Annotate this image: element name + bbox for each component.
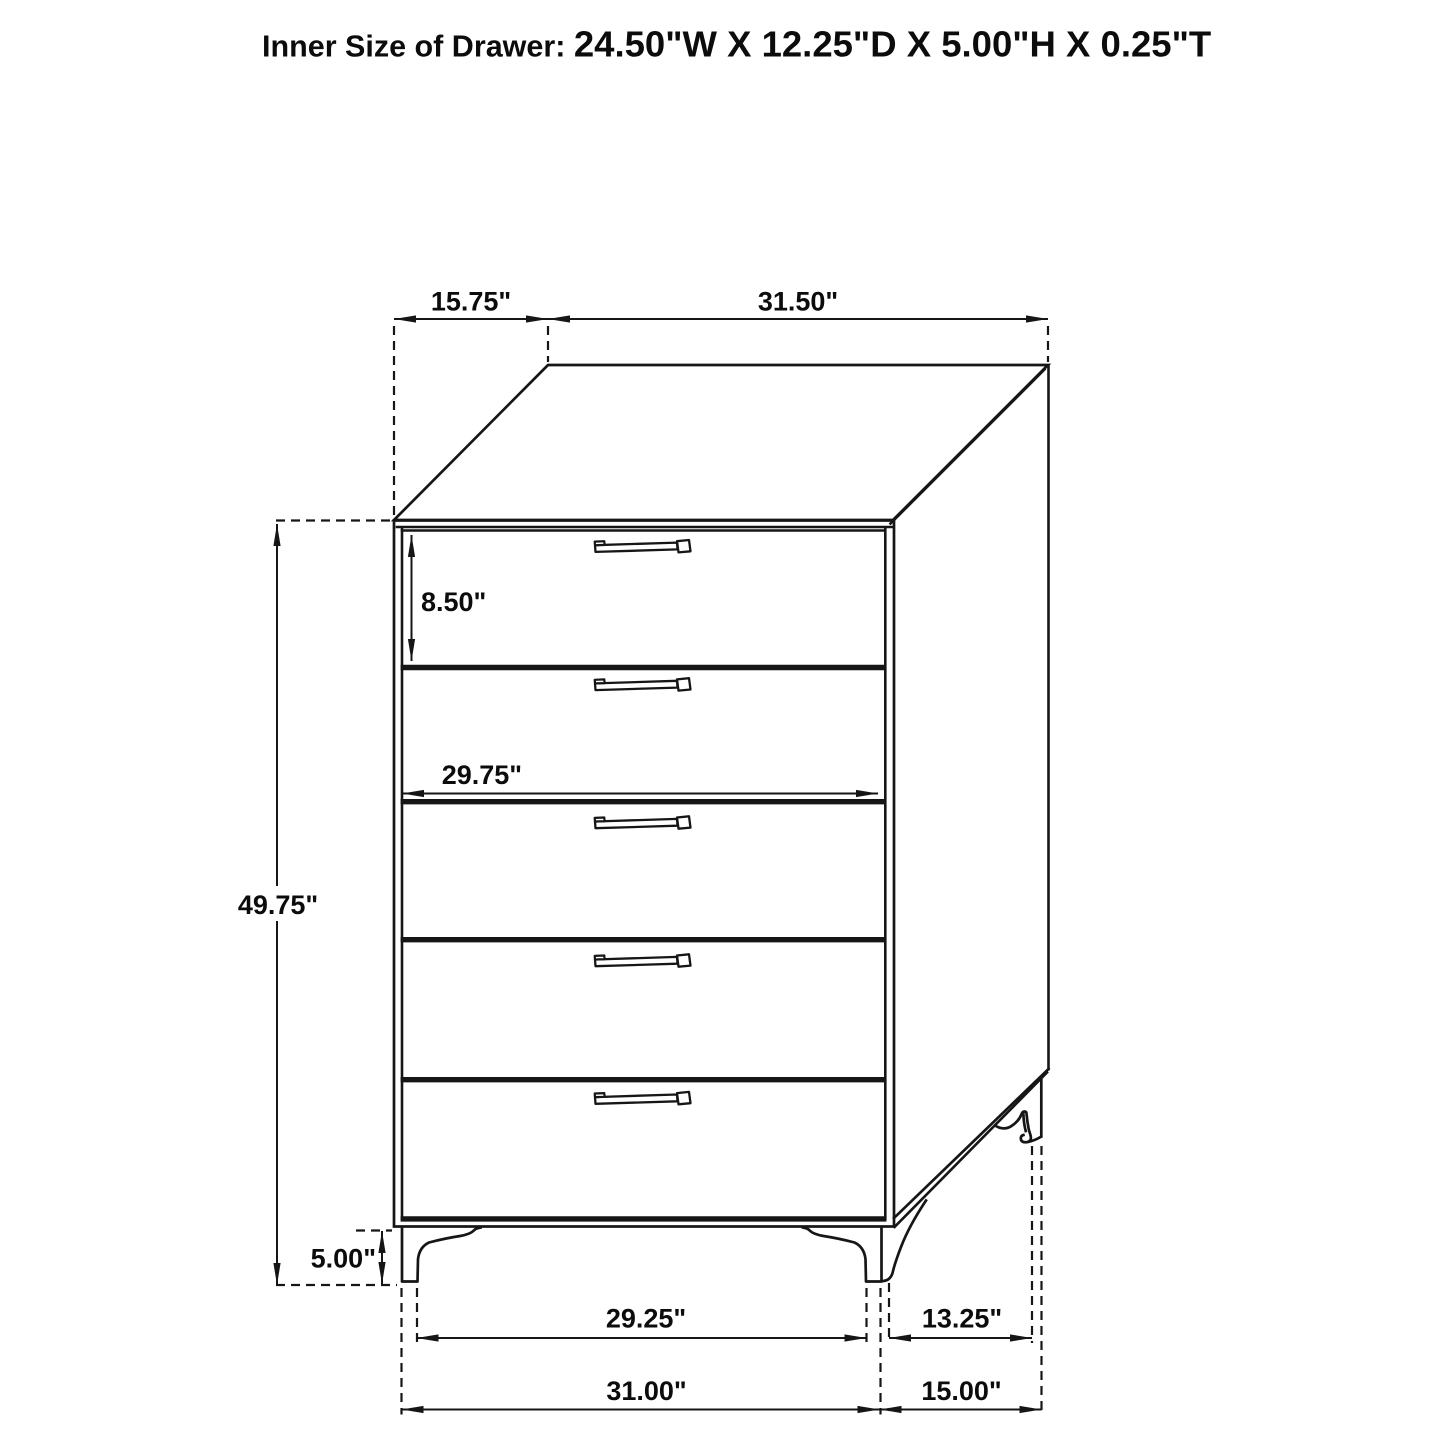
svg-text:31.50": 31.50" (758, 287, 838, 317)
svg-text:31.00": 31.00" (606, 1376, 686, 1406)
svg-text:15.00": 15.00" (921, 1376, 1001, 1406)
svg-text:29.25": 29.25" (606, 1304, 686, 1334)
svg-text:29.75": 29.75" (442, 760, 522, 790)
svg-text:13.25": 13.25" (922, 1304, 1002, 1334)
svg-text:15.75": 15.75" (431, 287, 511, 317)
svg-text:5.00": 5.00" (311, 1243, 376, 1273)
svg-text:Inner Size of Drawer: 24.50"W: Inner Size of Drawer: 24.50"W X 12.25"D … (262, 24, 1211, 65)
svg-text:49.75": 49.75" (238, 890, 318, 920)
svg-text:8.50": 8.50" (421, 587, 486, 617)
